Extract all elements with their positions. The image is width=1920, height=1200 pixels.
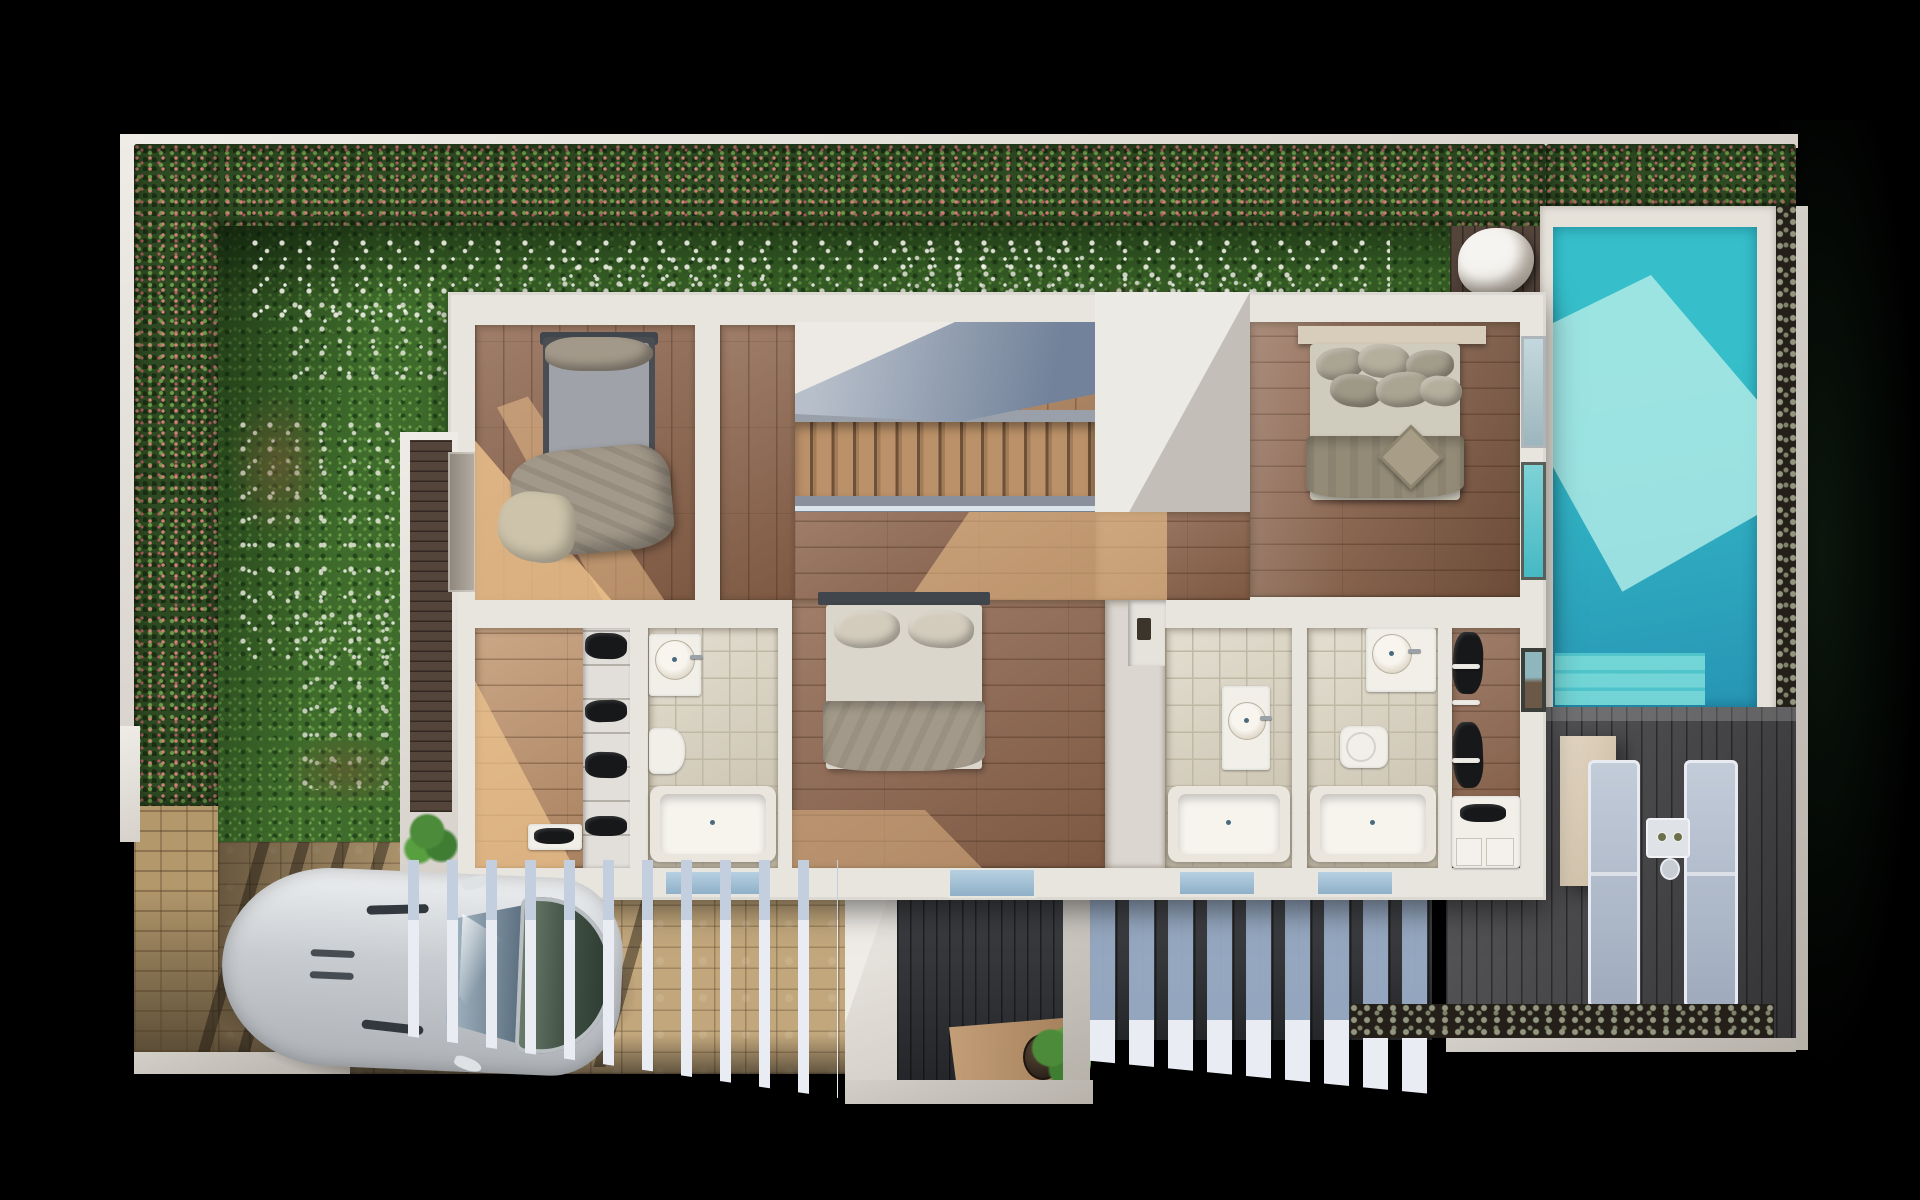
- tub-drain: [1370, 820, 1375, 825]
- shelf-box: [1486, 838, 1514, 866]
- plant-strip-bottom: [1350, 1004, 1774, 1038]
- patio-door: [1316, 870, 1394, 896]
- bed-headboard: [818, 592, 990, 605]
- closet-rail-arm: [1452, 758, 1480, 763]
- hanging-clothes: [1452, 721, 1484, 788]
- wardrobe-clothes: [585, 699, 628, 722]
- closet-rail-arm: [1452, 664, 1480, 669]
- pergola-left-beam-tint: [408, 860, 838, 920]
- dirt-patch: [228, 390, 328, 540]
- shelf-shoes: [1460, 804, 1506, 822]
- bathtub: [650, 786, 776, 862]
- master-window: [1521, 462, 1546, 580]
- sink-faucet: [690, 655, 703, 659]
- tub-drain: [710, 820, 715, 825]
- bed-pillow: [833, 608, 901, 649]
- balcony-door-opening: [448, 452, 476, 592]
- hedge-left: [134, 144, 218, 806]
- room-stair-hall: [720, 322, 1095, 600]
- deck-bottom-wall: [1446, 1038, 1796, 1052]
- water-reflection: [1553, 227, 1757, 707]
- roof-block: [1095, 292, 1250, 512]
- hedge-top: [134, 144, 1546, 226]
- daisy-cluster: [290, 300, 470, 395]
- sun-patch: [1095, 512, 1167, 600]
- dirt-patch: [280, 730, 410, 810]
- shelf-box: [1456, 838, 1482, 866]
- niche-object: [1137, 618, 1151, 640]
- drink-cup: [1673, 832, 1683, 842]
- lounger-hinge: [1687, 872, 1735, 876]
- patio-door: [948, 868, 1036, 898]
- patio-door: [1178, 870, 1256, 896]
- bed-foot-blanket: [823, 701, 985, 771]
- roof-shadow: [1095, 292, 1250, 512]
- toilet: [649, 728, 685, 774]
- bench-shoes: [534, 828, 574, 844]
- toilet: [1340, 726, 1388, 768]
- toilet-seat: [1346, 732, 1376, 762]
- master-headboard-shelf: [1298, 326, 1486, 344]
- shoe-shelf-unit: [1452, 796, 1520, 868]
- stair-landing-floor: [720, 325, 795, 600]
- side-balcony-deck: [410, 440, 452, 812]
- tub-drain: [1226, 820, 1231, 825]
- master-foot-blanket: [1306, 436, 1464, 498]
- closet-rail-arm: [1452, 700, 1480, 705]
- sink-drain: [672, 657, 677, 662]
- lounger-hinge: [1591, 872, 1637, 876]
- hallway-floor: [795, 512, 1095, 600]
- courtyard-left-wall: [845, 872, 897, 1082]
- bathtub: [1168, 786, 1290, 862]
- hanging-clothes: [1452, 631, 1484, 694]
- sun-lounger: [1588, 760, 1640, 1008]
- mattress-top-drape: [545, 337, 653, 371]
- boundary-wall-left: [120, 134, 134, 806]
- pool-steps: [1555, 653, 1705, 705]
- drink-cup: [1657, 832, 1667, 842]
- pool-water: [1553, 227, 1757, 707]
- staircase-treads: [795, 422, 1095, 496]
- entry-courtyard: [897, 872, 1063, 1082]
- floor-plan-render: [0, 0, 1920, 1200]
- deck-stool: [1660, 858, 1680, 880]
- wardrobe-shoes: [585, 752, 627, 779]
- sink-faucet: [1408, 649, 1421, 653]
- hedge-top-right: [1546, 144, 1796, 206]
- wardrobe-clothes: [585, 632, 628, 659]
- hall-to-master-floor: [1095, 512, 1250, 600]
- courtyard-bottom-wall: [845, 1080, 1093, 1104]
- bed-mattress: [826, 605, 982, 769]
- bed-pillow: [907, 608, 975, 649]
- left-wall-unit: [120, 726, 140, 842]
- sink-faucet: [1260, 716, 1272, 720]
- stair-stringer: [795, 496, 1095, 506]
- sun-lounger: [1684, 760, 1738, 1008]
- bathtub: [1310, 786, 1436, 862]
- wall-lit-face: [845, 872, 897, 1082]
- sink-drain: [1389, 651, 1394, 656]
- sun-patch: [795, 512, 1095, 600]
- courtyard-right-wall: [1063, 872, 1090, 1086]
- sink-drain: [1244, 718, 1249, 723]
- deck-side-table: [1646, 818, 1690, 858]
- boundary-wall-right: [1796, 206, 1808, 1050]
- master-window: [1521, 336, 1546, 448]
- closet-window: [1521, 648, 1546, 712]
- wardrobe-shoes: [585, 816, 627, 836]
